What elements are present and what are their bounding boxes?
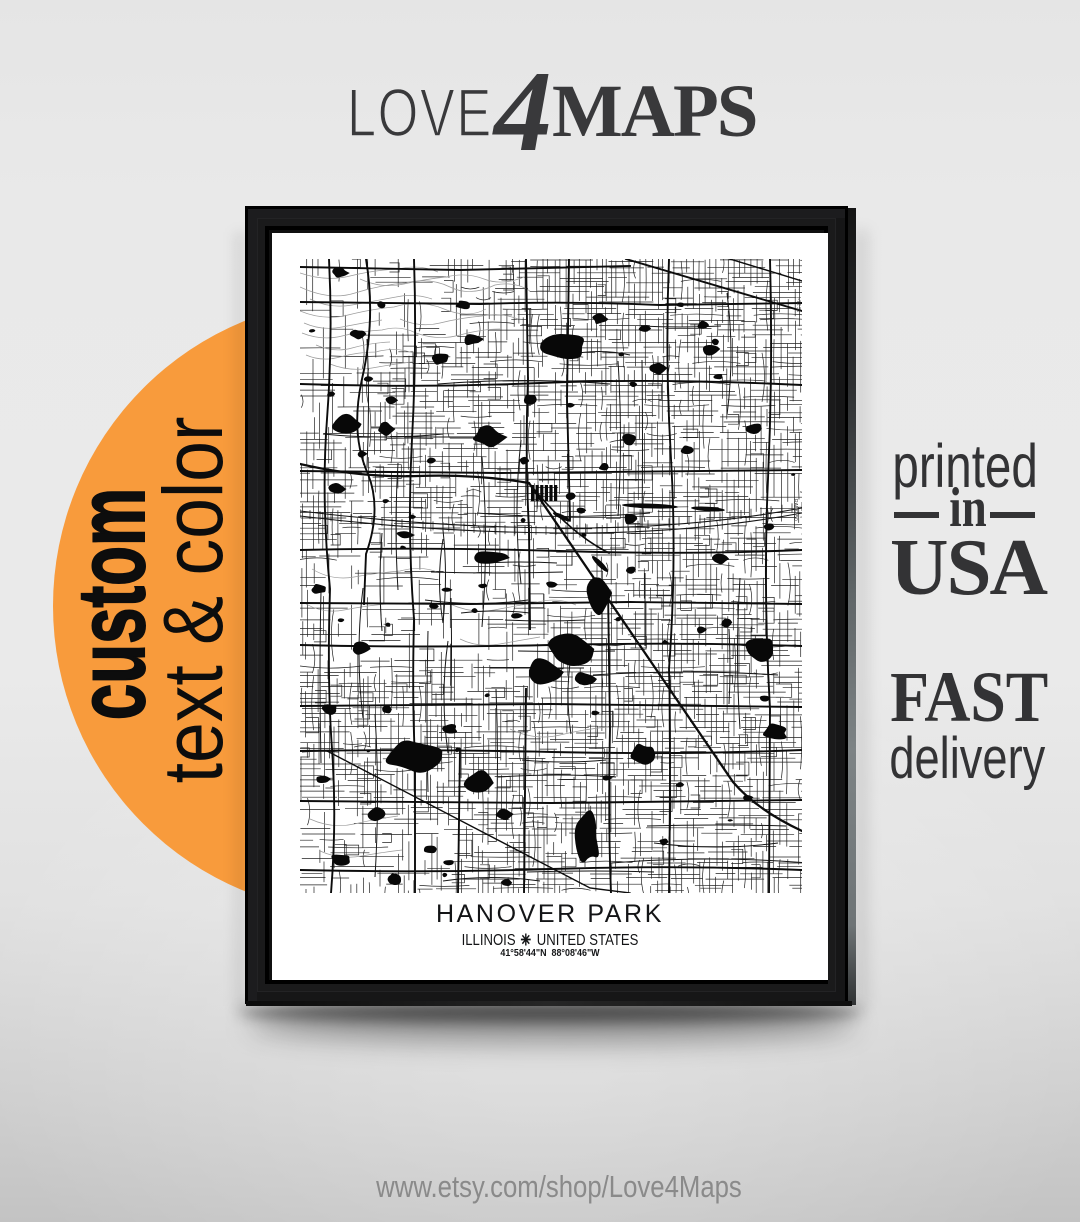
svg-text:RAMP-50: RAMP-50 <box>792 499 798 521</box>
svg-text:I-72 St: I-72 St <box>795 297 801 312</box>
